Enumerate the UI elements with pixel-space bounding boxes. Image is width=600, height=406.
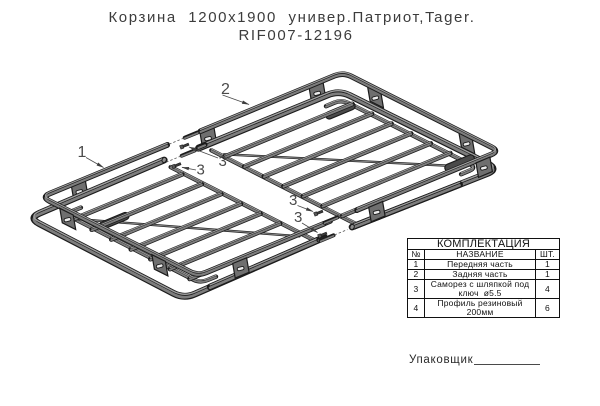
svg-text:3: 3 (219, 153, 227, 170)
svg-text:3: 3 (294, 209, 302, 226)
svg-text:1: 1 (78, 144, 87, 161)
svg-text:3: 3 (289, 192, 297, 209)
svg-text:2: 2 (221, 81, 230, 98)
svg-text:3: 3 (197, 162, 205, 179)
